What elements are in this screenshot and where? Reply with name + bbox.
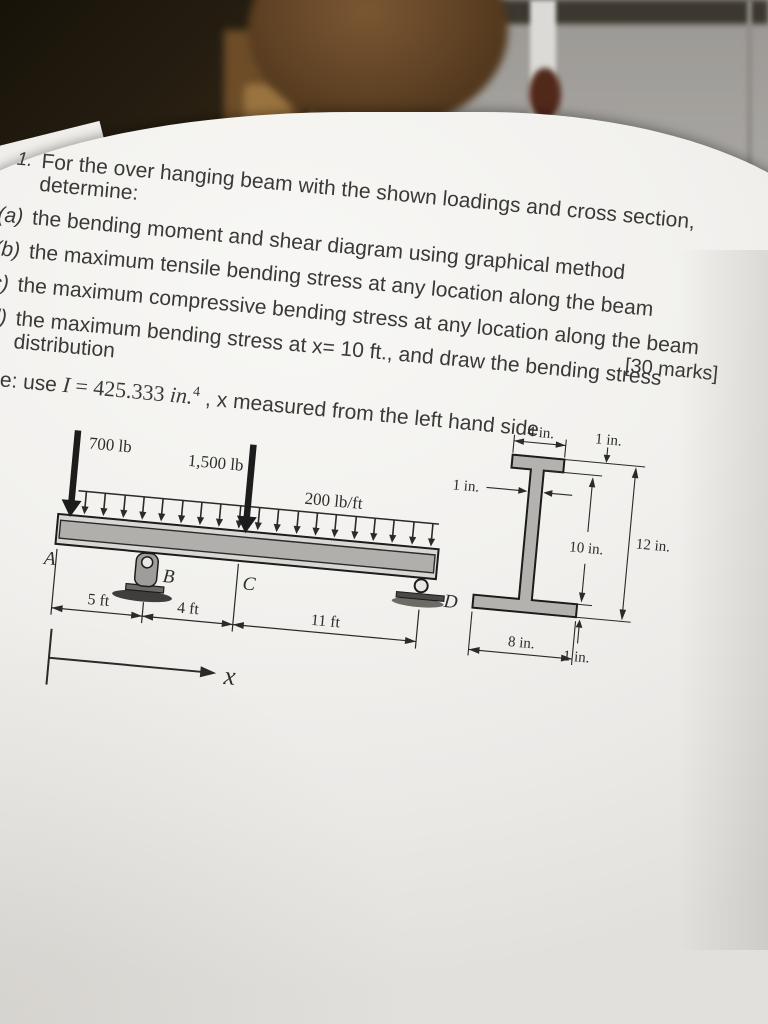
note-prefix: ote: use (0, 367, 64, 397)
x-axis-label: x (222, 661, 238, 691)
dim-ab-label: 5 ft (87, 591, 111, 610)
printed-page-content: 1. For the over hanging beam with the sh… (0, 146, 768, 1024)
dim-cd-label: 11 ft (310, 612, 341, 632)
beam-point-A-label: A (41, 548, 57, 570)
beam-diagram: 200 lb/ft 700 lb 1,500 lb (30, 418, 474, 731)
cross-section-diagram: 4 in. 1 in. 1 in. (423, 418, 695, 692)
ext-bottom-flange-top (577, 604, 592, 605)
problem-number: 1. (14, 148, 34, 195)
i-beam-shape (472, 452, 590, 617)
dim-bottom-flange-width: 8 in. (507, 634, 535, 652)
dim-bc-label: 4 ft (176, 599, 200, 618)
dim-web-height: 10 in. (569, 539, 605, 558)
x-axis (46, 629, 218, 700)
item-d-label: d) (0, 305, 8, 353)
item-a-label: (a) (0, 203, 24, 228)
background-hanging-cord (529, 68, 561, 120)
ext-flange-top (564, 459, 645, 466)
distributed-load-label: 200 lb/ft (304, 489, 364, 513)
dim-top-flange-thickness: 1 in. (594, 431, 622, 449)
photo-of-exam-sheet: 1. For the over hanging beam with the sh… (0, 0, 768, 1024)
beam-point-B-label: B (162, 566, 176, 588)
point-load-1500-label: 1,500 lb (187, 451, 244, 475)
inertia-unit: in. (169, 382, 194, 409)
beam-point-C-label: C (242, 573, 257, 595)
moment-of-inertia-value: = 425.333 (69, 373, 171, 407)
point-load-700-label: 700 lb (88, 434, 133, 457)
item-c-label: c) (0, 271, 10, 296)
ext-flange-bottom (544, 471, 602, 476)
point-load-700-arrow (60, 430, 88, 518)
dim-top-thickness-arrow (603, 447, 611, 463)
item-b-label: (b) (0, 237, 21, 262)
dim-total-height: 12 in. (635, 536, 671, 555)
dim-web-thickness: 1 in. (452, 477, 480, 495)
